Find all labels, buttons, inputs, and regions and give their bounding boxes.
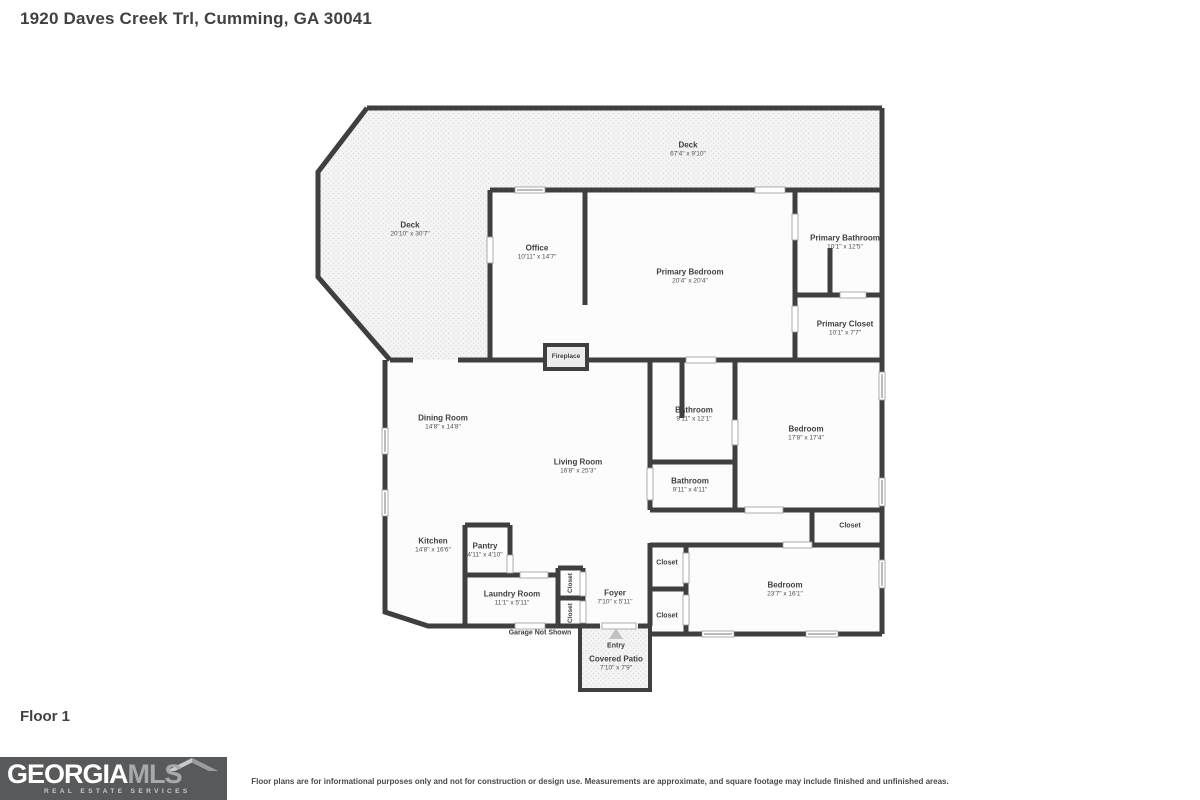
room-dims: 23'7" x 16'1" bbox=[767, 591, 803, 599]
room-name: Pantry bbox=[467, 542, 502, 552]
room-label-closet-right: Closet bbox=[839, 521, 860, 530]
room-name: Fireplace bbox=[552, 353, 581, 361]
room-label-bedroom-right: Bedroom 17'8" x 17'4" bbox=[788, 425, 824, 444]
room-label-living-room: Living Room 16'8" x 25'3" bbox=[554, 458, 602, 477]
room-dims: 14'8" x 16'6" bbox=[415, 547, 451, 555]
room-label-closet-hall-lower: Closet bbox=[567, 603, 575, 623]
room-dims: 7'10" x 5'11" bbox=[597, 599, 632, 607]
room-name: Garage Not Shown bbox=[509, 628, 572, 637]
room-name: Bathroom bbox=[675, 406, 713, 416]
georgia-mls-logo: GEORGIAMLS REAL ESTATE SERVICES bbox=[0, 757, 227, 800]
room-name: Kitchen bbox=[415, 537, 451, 547]
lower-rooms-area bbox=[385, 360, 882, 634]
room-dims: 10'11" x 14'7" bbox=[518, 254, 557, 262]
room-label-pantry: Pantry 4'11" x 4'10" bbox=[467, 542, 502, 561]
room-name: Closet bbox=[567, 573, 575, 593]
room-name: Closet bbox=[567, 603, 575, 623]
room-name: Foyer bbox=[597, 589, 632, 599]
room-label-kitchen: Kitchen 14'8" x 16'6" bbox=[415, 537, 451, 556]
room-dims: 9'11" x 12'1" bbox=[675, 416, 713, 424]
logo-georgia-text: GEORGIA bbox=[7, 759, 128, 789]
floor-label: Floor 1 bbox=[20, 708, 70, 725]
room-label-primary-bedroom: Primary Bedroom 20'4" x 20'4" bbox=[656, 268, 723, 287]
room-label-bathroom-upper: Bathroom 9'11" x 12'1" bbox=[675, 406, 713, 425]
logo-tagline: REAL ESTATE SERVICES bbox=[44, 788, 191, 795]
room-name: Deck bbox=[390, 221, 429, 231]
room-label-closet-hall-upper: Closet bbox=[567, 573, 575, 593]
room-name: Closet bbox=[839, 521, 860, 530]
room-label-deck-top: Deck 67'4" x 9'10" bbox=[670, 141, 706, 160]
garage-note: Garage Not Shown bbox=[509, 628, 572, 637]
room-label-primary-closet: Primary Closet 10'1" x 7'7" bbox=[817, 320, 873, 339]
room-name: Living Room bbox=[554, 458, 602, 468]
room-label-laundry-room: Laundry Room 11'1" x 5'11" bbox=[484, 590, 540, 609]
room-name: Bedroom bbox=[788, 425, 824, 435]
logo-wordmark: GEORGIAMLS bbox=[7, 757, 182, 791]
room-name: Closet bbox=[656, 558, 677, 567]
room-label-primary-bathroom: Primary Bathroom 10'1" x 12'5" bbox=[810, 234, 880, 253]
room-dims: 10'1" x 12'5" bbox=[810, 244, 880, 252]
room-dims: 4'11" x 4'10" bbox=[467, 552, 502, 560]
room-name: Dining Room bbox=[418, 414, 468, 424]
room-label-closet-bed-upper: Closet bbox=[656, 558, 677, 567]
room-name: Covered Patio bbox=[589, 655, 643, 665]
floorplan-canvas: Deck 67'4" x 9'10" Deck 20'10" x 30'7" O… bbox=[0, 0, 1200, 800]
floorplan-walls-svg bbox=[0, 0, 1200, 800]
room-label-fireplace: Fireplace bbox=[552, 353, 581, 361]
room-name: Primary Bedroom bbox=[656, 268, 723, 278]
room-dims: 10'1" x 7'7" bbox=[817, 330, 873, 338]
logo-mls-text: MLS bbox=[128, 759, 182, 789]
room-dims: 20'10" x 30'7" bbox=[390, 231, 429, 239]
room-label-office: Office 10'11" x 14'7" bbox=[518, 244, 557, 263]
room-name: Bathroom bbox=[671, 477, 709, 487]
room-dims: 67'4" x 9'10" bbox=[670, 151, 706, 159]
room-dims: 17'8" x 17'4" bbox=[788, 435, 824, 443]
room-name: Deck bbox=[670, 141, 706, 151]
room-dims: 20'4" x 20'4" bbox=[656, 278, 723, 286]
room-label-bathroom-lower: Bathroom 9'11" x 4'11" bbox=[671, 477, 709, 496]
room-name: Office bbox=[518, 244, 557, 254]
room-dims: 16'8" x 25'3" bbox=[554, 468, 602, 476]
room-name: Closet bbox=[656, 611, 677, 620]
room-name: Primary Closet bbox=[817, 320, 873, 330]
room-label-entry: Entry bbox=[607, 641, 625, 650]
floorplan-page: 1920 Daves Creek Trl, Cumming, GA 30041 bbox=[0, 0, 1200, 800]
room-dims: 7'10" x 7'9" bbox=[589, 665, 643, 673]
room-label-covered-patio: Covered Patio 7'10" x 7'9" bbox=[589, 655, 643, 674]
room-dims: 11'1" x 5'11" bbox=[484, 600, 540, 608]
room-label-foyer: Foyer 7'10" x 5'11" bbox=[597, 589, 632, 608]
room-name: Laundry Room bbox=[484, 590, 540, 600]
room-label-deck-left: Deck 20'10" x 30'7" bbox=[390, 221, 429, 240]
room-dims: 14'8" x 14'8" bbox=[418, 424, 468, 432]
room-name: Bedroom bbox=[767, 581, 803, 591]
room-name: Primary Bathroom bbox=[810, 234, 880, 244]
room-label-dining-room: Dining Room 14'8" x 14'8" bbox=[418, 414, 468, 433]
room-label-bedroom-lower: Bedroom 23'7" x 16'1" bbox=[767, 581, 803, 600]
room-label-closet-bed-lower: Closet bbox=[656, 611, 677, 620]
room-name: Entry bbox=[607, 641, 625, 650]
room-dims: 9'11" x 4'11" bbox=[671, 487, 709, 495]
